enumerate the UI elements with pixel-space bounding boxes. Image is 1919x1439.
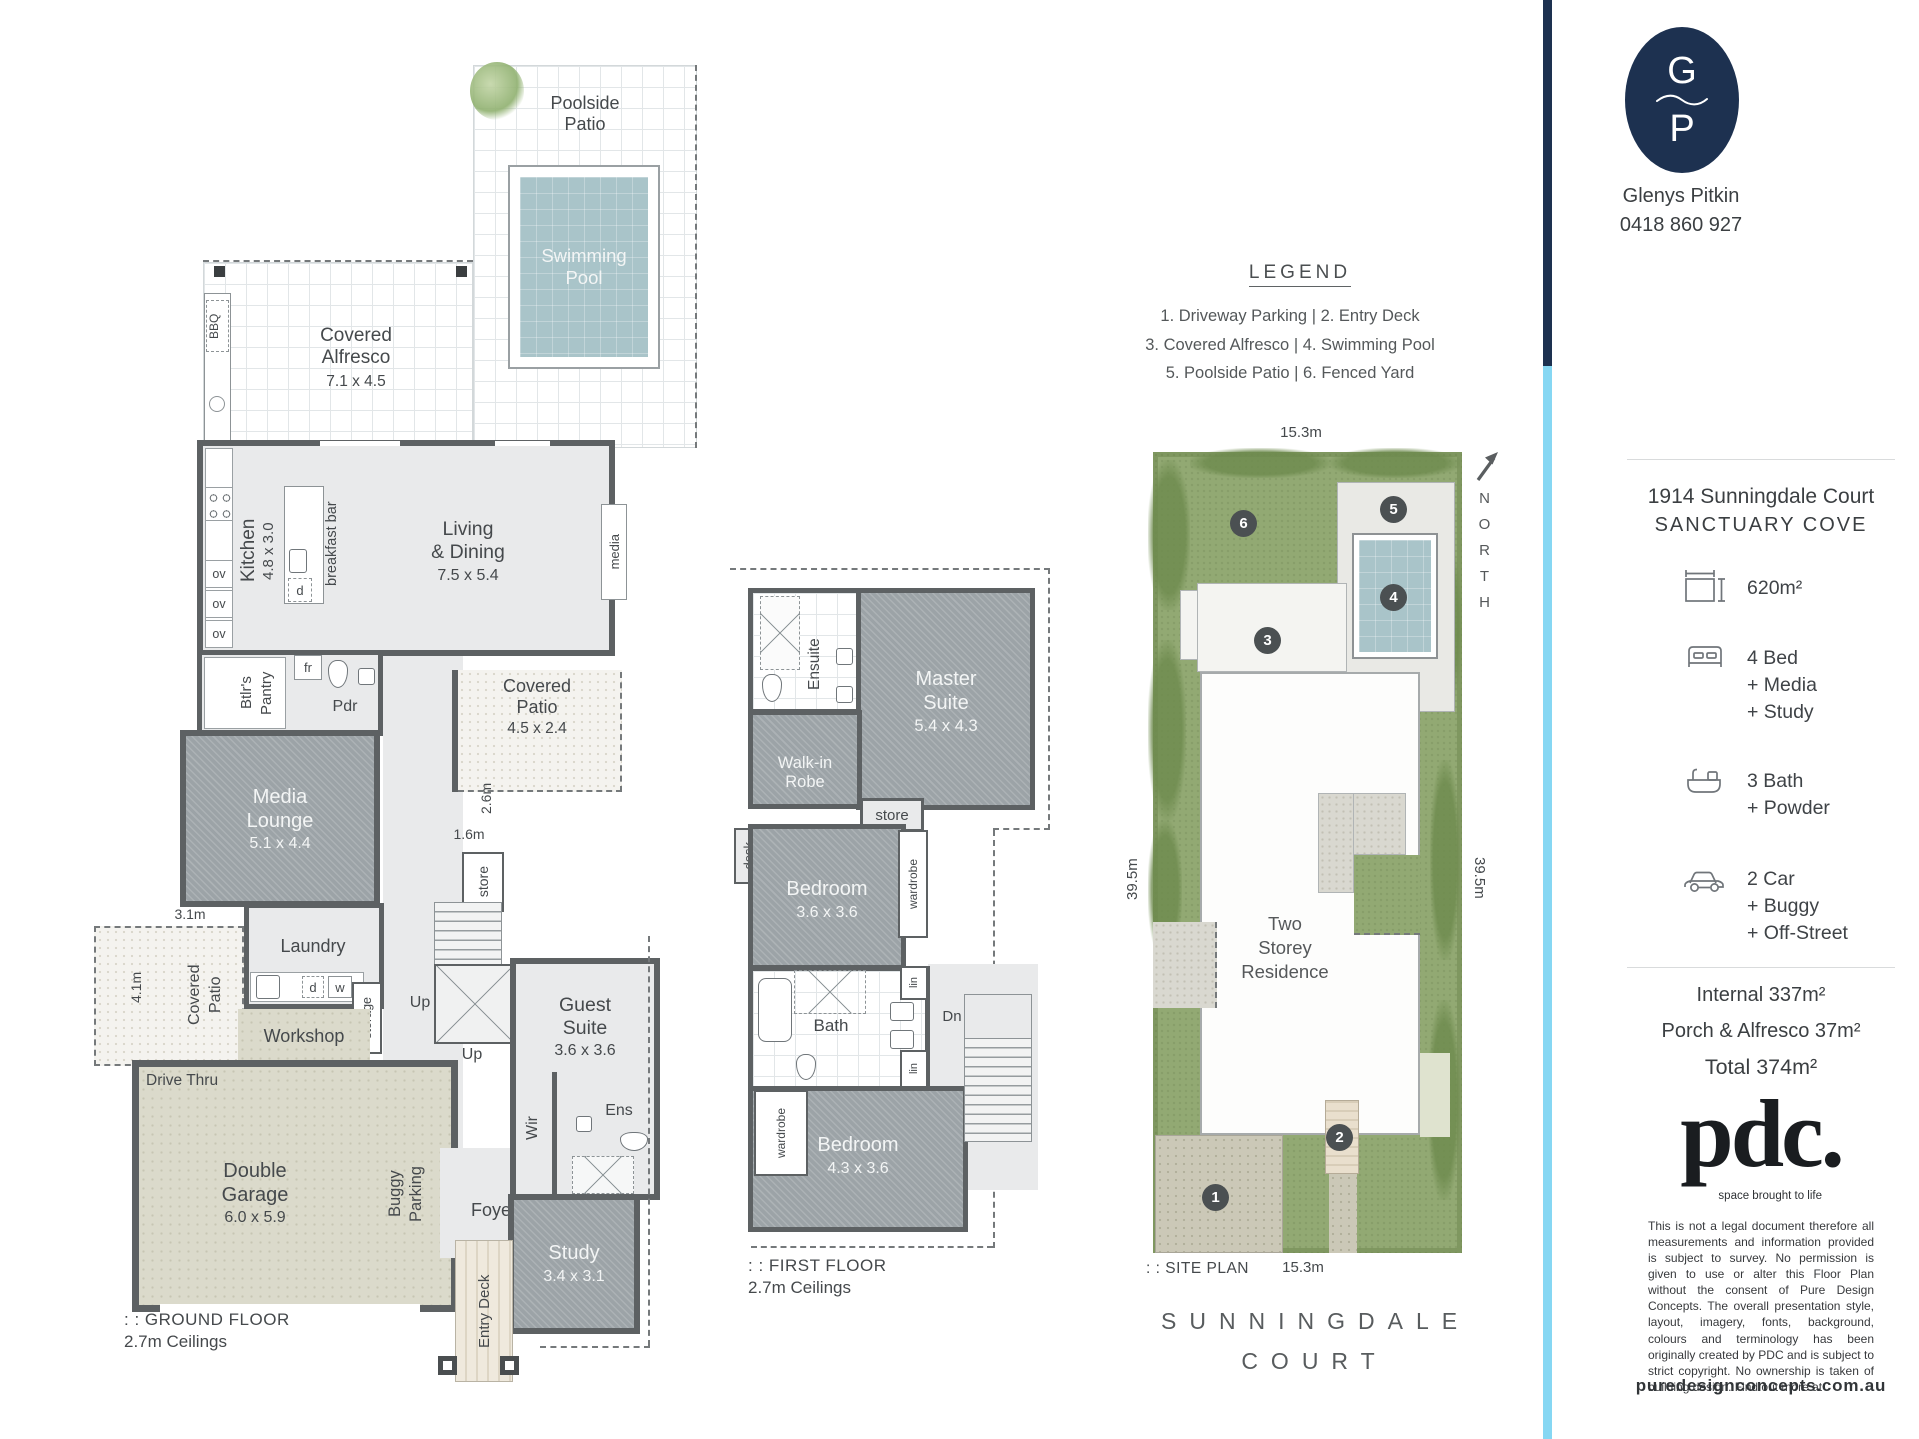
drive-thru-label: Drive Thru — [146, 1072, 250, 1090]
site-marker-4: 4 — [1380, 584, 1407, 611]
agent-logo: G P — [1625, 27, 1739, 173]
dim-3-1m: 3.1m — [168, 906, 212, 923]
stair-landing — [434, 964, 516, 1044]
shrub-icon — [1430, 760, 1460, 960]
post-icon — [456, 266, 467, 277]
divider-bar-navy — [1543, 0, 1552, 366]
land-size-value: 620m² — [1747, 577, 1877, 600]
living-dining-label: Living& Dining 7.5 x 5.4 — [398, 518, 538, 586]
ground-floor-ceilings: 2.7m Ceilings — [124, 1332, 404, 1352]
laundry-label: Laundry — [254, 936, 372, 957]
dim-2-6m: 2.6m — [478, 775, 495, 821]
deck-post-icon — [438, 1356, 457, 1375]
up-label: Up — [454, 1046, 490, 1065]
site-alfresco-wing — [1180, 590, 1198, 660]
first-boundary-dashed — [993, 828, 1050, 830]
oven-label: ov — [212, 597, 225, 611]
pdc-tagline: space brought to life — [1700, 1190, 1822, 1202]
first-boundary-dashed — [730, 568, 1050, 570]
site-left-patio — [1153, 922, 1217, 1008]
washer-box: w — [328, 976, 352, 998]
first-boundary-dashed — [751, 1246, 993, 1248]
wave-icon — [1653, 93, 1711, 107]
guest-suite-label: GuestSuite 3.6 x 3.6 — [528, 994, 642, 1061]
legend-row: 3. Covered Alfresco | 4. Swimming Pool — [1090, 331, 1490, 360]
dishwasher-label: d — [296, 583, 303, 598]
basin-icon — [890, 1002, 914, 1021]
stairs-up — [434, 902, 502, 966]
fridge-box: fr — [294, 655, 322, 680]
disclaimer-text: This is not a legal document therefore a… — [1648, 1218, 1874, 1395]
post-icon — [214, 266, 225, 277]
swimming-pool: SwimmingPool — [508, 165, 660, 369]
double-garage-label: DoubleGarage 6.0 x 5.9 — [198, 1160, 312, 1228]
area-porch: Porch & Alfresco 37m² — [1600, 1020, 1919, 1043]
linen-closet: lin — [900, 1050, 928, 1088]
alfresco-boundary-dashed — [203, 260, 473, 262]
store-first-label: store — [875, 807, 908, 824]
wardrobe1-closet: wardrobe — [898, 830, 928, 938]
agent-phone: 0418 860 927 — [1591, 214, 1771, 237]
covered-patio-left-label: Covered — [186, 940, 205, 1050]
linen-closet: lin — [900, 966, 928, 1000]
site-dim-left: 39.5m — [1124, 850, 1142, 908]
buggy-parking-label: Parking — [407, 1150, 427, 1238]
shrub-icon — [1148, 640, 1186, 820]
site-marker-2: 2 — [1326, 1124, 1353, 1151]
basin-icon — [576, 1116, 592, 1132]
oven-box: ov — [205, 560, 233, 588]
window-gap — [495, 441, 550, 446]
site-marker-6: 6 — [1230, 510, 1257, 537]
area-total: Total 374m² — [1600, 1055, 1919, 1080]
bath-icon — [1684, 766, 1724, 796]
site-dim-bottom: 15.3m — [1268, 1259, 1338, 1277]
property-suburb: SANCTUARY COVE — [1600, 514, 1919, 537]
pdc-logo: pdc. — [1600, 1086, 1919, 1182]
bed-value: 4 Bed+ Media+ Study — [1747, 645, 1897, 726]
first-floor-title: : : FIRST FLOOR — [748, 1256, 1028, 1276]
sink-icon — [209, 396, 225, 412]
poolside-boundary-dashed — [695, 65, 697, 448]
swimming-pool-label: SwimmingPool — [541, 245, 626, 289]
site-residence-label: TwoStoreyResidence — [1225, 912, 1345, 984]
north-arrow-icon — [1472, 448, 1502, 484]
kitchen-dims: 4.8 x 3.0 — [260, 505, 278, 597]
legend-rows: 1. Driveway Parking | 2. Entry Deck 3. C… — [1090, 302, 1490, 388]
property-address: 1914 Sunningdale Court — [1600, 485, 1919, 509]
shower-icon — [794, 970, 866, 1014]
ground-boundary-dashed — [540, 1346, 650, 1348]
site-entry-path — [1329, 1174, 1357, 1253]
lin-label: lin — [908, 1063, 920, 1074]
wir-ens-wall — [552, 1072, 557, 1194]
media-lounge-label: MediaLounge 5.1 x 4.4 — [210, 786, 350, 854]
study-label: Study 3.4 x 3.1 — [518, 1242, 630, 1286]
bedroom2-label: Bedroom 4.3 x 3.6 — [796, 1134, 920, 1178]
wardrobe-label: wardrobe — [906, 859, 920, 909]
island-sink-icon — [289, 549, 307, 573]
cooktop-icon — [205, 487, 233, 521]
washer-label: w — [335, 980, 344, 995]
land-size-icon — [1684, 568, 1726, 604]
site-plan-title: : : SITE PLAN — [1146, 1260, 1276, 1278]
up-label: Up — [402, 994, 438, 1013]
wir-label: Wir — [524, 1090, 544, 1166]
first-floor-ceilings: 2.7m Ceilings — [748, 1278, 1028, 1298]
site-marker-1: 1 — [1202, 1184, 1229, 1211]
linen-closet — [572, 1156, 634, 1194]
sidebar-divider — [1627, 967, 1895, 968]
north-label: NORTH — [1476, 490, 1500, 650]
basin-icon — [890, 1030, 914, 1049]
wardrobe-label: wardrobe — [774, 1108, 788, 1158]
deck-post-icon — [500, 1356, 519, 1375]
walkin-robe-label: Walk-inRobe — [758, 754, 852, 793]
oven-box: ov — [205, 590, 233, 618]
street-name: COURT — [1148, 1348, 1468, 1375]
oven-label: ov — [212, 627, 225, 641]
ensuite-guest-label: Ens — [592, 1102, 646, 1121]
stairs-down — [964, 1038, 1032, 1142]
bed-icon — [1686, 642, 1724, 672]
window-gap — [320, 441, 400, 446]
shower-icon — [760, 596, 800, 670]
bbq-label: BBQ — [206, 300, 229, 352]
ensuite-label: Ensuite — [806, 624, 826, 704]
powder-room-label: Pdr — [322, 698, 368, 717]
kitchen-label: Kitchen — [238, 500, 260, 600]
dn-label: Dn — [936, 1008, 968, 1026]
agent-logo-p: P — [1669, 110, 1694, 148]
agent-logo-g: G — [1667, 52, 1697, 90]
store-label: store — [475, 866, 491, 897]
patio-right-dashed — [620, 672, 622, 792]
wardrobe2-closet: wardrobe — [754, 1090, 808, 1176]
car-icon — [1681, 864, 1727, 894]
ground-floor-title: : : GROUND FLOOR — [124, 1310, 404, 1330]
website-link: puredesignconcepts.com.au — [1600, 1376, 1919, 1396]
dishwasher-box: d — [288, 578, 312, 602]
dryer-box: d — [302, 976, 324, 998]
site-marker-5: 5 — [1380, 496, 1407, 523]
shrub-icon — [1148, 460, 1190, 610]
media-label: media — [607, 534, 622, 569]
car-value: 2 Car+ Buggy+ Off-Street — [1747, 866, 1917, 947]
pantry-label: Btlr's — [238, 656, 256, 730]
pantry-label: Pantry — [258, 656, 276, 730]
basin-icon — [836, 686, 853, 703]
area-internal: Internal 337m² — [1600, 984, 1919, 1007]
kitchen-bench — [205, 448, 233, 648]
dim-4-1m: 4.1m — [128, 964, 145, 1010]
site-dashed-outline — [1354, 933, 1420, 935]
covered-patio-right-label: CoveredPatio 4.5 x 2.4 — [478, 676, 596, 739]
entry-deck-label: Entry Deck — [476, 1251, 493, 1371]
divider-bar-blue — [1543, 366, 1552, 1439]
first-boundary-dashed — [1048, 568, 1050, 830]
covered-alfresco-label: CoveredAlfresco 7.1 x 4.5 — [296, 325, 416, 391]
fridge-label: fr — [304, 660, 312, 675]
oven-label: ov — [212, 567, 225, 581]
sidebar-divider — [1627, 459, 1895, 460]
stair-landing-first — [964, 994, 1032, 1040]
site-pale-strip — [1420, 1053, 1450, 1137]
breakfast-bar-label: breakfast bar — [324, 488, 342, 600]
floorplan-page: PoolsidePatio SwimmingPool BBQ CoveredAl… — [0, 0, 1919, 1439]
bath-value: 3 Bath+ Powder — [1747, 768, 1897, 822]
media-niche: media — [601, 504, 627, 600]
basin-icon — [358, 668, 375, 685]
dryer-label: d — [309, 980, 316, 995]
street-name: SUNNINGDALE — [1148, 1308, 1468, 1335]
covered-patio-left-label: Patio — [207, 940, 226, 1050]
site-upper-patio — [1318, 793, 1354, 893]
ground-boundary-dashed — [648, 936, 650, 1346]
legend-row: 5. Poolside Patio | 6. Fenced Yard — [1090, 359, 1490, 388]
site-marker-3: 3 — [1254, 627, 1281, 654]
site-yard-notch — [1354, 855, 1420, 935]
legend-title: LEGEND — [1190, 262, 1410, 284]
site-dim-right: 39.5m — [1470, 848, 1488, 908]
buggy-parking-label: Buggy — [386, 1150, 406, 1238]
basin-icon — [836, 648, 853, 665]
agent-name: Glenys Pitkin — [1591, 185, 1771, 208]
site-dim-top: 15.3m — [1266, 424, 1336, 442]
poolside-patio-label: PoolsidePatio — [515, 93, 655, 135]
master-suite-label: MasterSuite 5.4 x 4.3 — [884, 668, 1008, 737]
bath-label: Bath — [800, 1016, 862, 1036]
laundry-sink-icon — [256, 975, 280, 999]
bedroom1-label: Bedroom 3.6 x 3.6 — [766, 878, 888, 922]
workshop-label: Workshop — [242, 1026, 366, 1047]
legend-row: 1. Driveway Parking | 2. Entry Deck — [1090, 302, 1490, 331]
lin-label: lin — [908, 977, 920, 988]
shrub-icon — [1190, 448, 1330, 478]
oven-box: ov — [205, 620, 233, 648]
dim-1-6m: 1.6m — [448, 826, 490, 843]
bathtub-icon — [758, 978, 792, 1042]
shrub-icon — [1330, 448, 1460, 478]
